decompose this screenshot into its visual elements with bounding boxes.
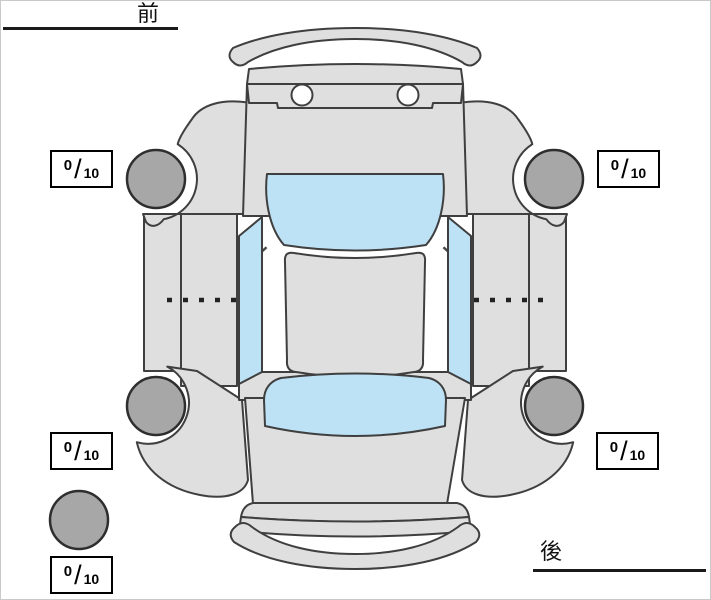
- rear-direction-underline: [533, 569, 706, 572]
- rear-left-tire: [127, 377, 185, 435]
- tire-score-max: 10: [630, 447, 646, 463]
- spare-tire: [50, 491, 108, 549]
- tire-score-separator: /: [620, 438, 628, 465]
- tire-score-max: 10: [84, 571, 100, 587]
- front-panel: [247, 84, 463, 108]
- tire-score-spare: 0 / 10: [50, 556, 113, 594]
- rear-right-tire: [525, 377, 583, 435]
- tire-score-separator: /: [621, 156, 629, 183]
- front-direction-underline: [3, 27, 178, 30]
- rocker-panel-right: [529, 214, 566, 371]
- tire-score-separator: /: [74, 562, 82, 589]
- door-panel-left: [181, 214, 237, 386]
- tire-score-max: 10: [84, 165, 100, 181]
- front-cowl-strip: [247, 64, 463, 84]
- rocker-panel-left: [144, 214, 181, 371]
- tire-condition-diagram: 前 後 0 / 10 0 / 10 0 / 10 0 / 10 0 / 10: [0, 0, 711, 600]
- front-bumper: [230, 28, 481, 66]
- tire-score-max: 10: [84, 447, 100, 463]
- car-top-view: [0, 0, 711, 600]
- tire-score-value: 0: [64, 439, 72, 456]
- tire-score-value: 0: [610, 439, 618, 456]
- front-circle-right: [398, 85, 419, 106]
- tire-score-max: 10: [631, 165, 647, 181]
- side-window-left: [239, 217, 262, 384]
- tire-score-front-right: 0 / 10: [597, 150, 660, 188]
- tire-score-separator: /: [74, 156, 82, 183]
- roof: [285, 253, 425, 377]
- tire-score-rear-left: 0 / 10: [50, 432, 113, 470]
- tire-score-front-left: 0 / 10: [50, 150, 113, 188]
- tire-score-value: 0: [64, 563, 72, 580]
- front-circle-left: [292, 85, 313, 106]
- front-direction-label: 前: [137, 3, 160, 25]
- windshield: [266, 174, 444, 251]
- rear-window: [264, 374, 446, 437]
- front-left-tire: [127, 150, 185, 208]
- door-panel-right: [473, 214, 529, 386]
- tire-score-value: 0: [611, 157, 619, 174]
- tire-score-rear-right: 0 / 10: [596, 432, 659, 470]
- tire-score-separator: /: [74, 438, 82, 465]
- rear-direction-label: 後: [540, 541, 563, 563]
- front-right-tire: [525, 150, 583, 208]
- tire-score-value: 0: [64, 157, 72, 174]
- side-window-right: [448, 217, 471, 384]
